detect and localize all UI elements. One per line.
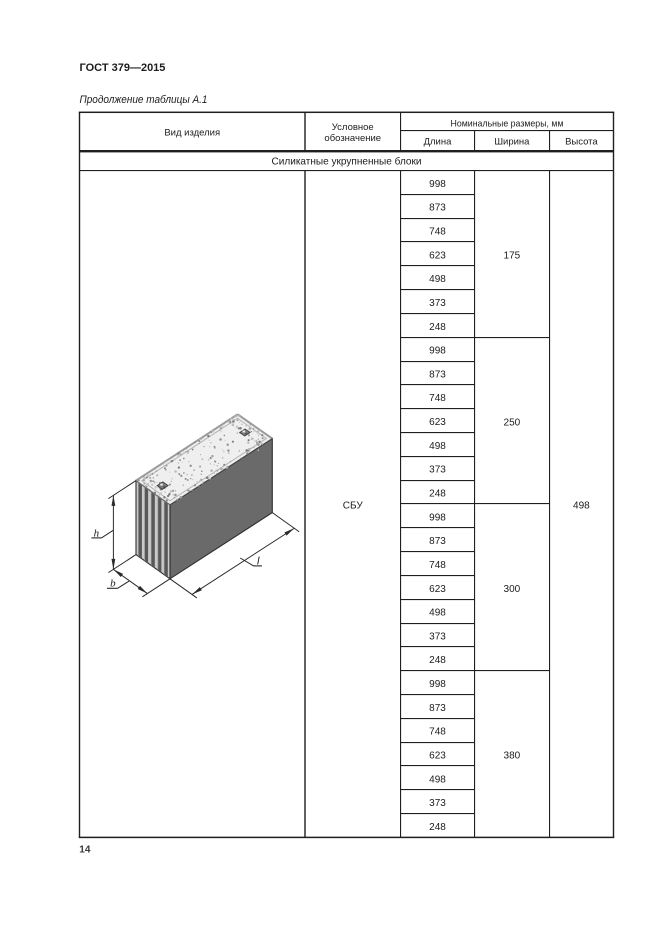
svg-text:623: 623 <box>429 250 446 261</box>
svg-text:498: 498 <box>429 774 446 785</box>
svg-text:СБУ: СБУ <box>343 501 364 512</box>
svg-text:873: 873 <box>429 703 446 714</box>
svg-text:обозначение: обозначение <box>324 133 381 144</box>
svg-text:998: 998 <box>429 512 446 523</box>
svg-text:373: 373 <box>429 465 446 476</box>
svg-text:380: 380 <box>504 751 521 762</box>
svg-text:300: 300 <box>504 584 521 595</box>
svg-text:373: 373 <box>429 798 446 809</box>
svg-text:Продолжение таблицы А.1: Продолжение таблицы А.1 <box>80 94 208 106</box>
svg-text:498: 498 <box>573 501 590 512</box>
svg-text:748: 748 <box>429 393 446 404</box>
svg-text:Силикатные укрупненные блоки: Силикатные укрупненные блоки <box>272 156 422 168</box>
svg-text:373: 373 <box>429 298 446 309</box>
svg-text:748: 748 <box>429 560 446 571</box>
svg-text:Высота: Высота <box>565 136 598 147</box>
svg-text:373: 373 <box>429 631 446 642</box>
svg-text:248: 248 <box>429 322 446 333</box>
svg-text:748: 748 <box>429 227 446 238</box>
svg-text:Номинальные размеры, мм: Номинальные размеры, мм <box>451 118 564 129</box>
svg-text:250: 250 <box>504 417 521 428</box>
svg-text:248: 248 <box>429 655 446 666</box>
svg-text:498: 498 <box>429 608 446 619</box>
svg-text:623: 623 <box>429 584 446 595</box>
svg-text:h: h <box>94 528 100 540</box>
svg-text:998: 998 <box>429 679 446 690</box>
svg-text:14: 14 <box>79 845 91 856</box>
svg-text:873: 873 <box>429 369 446 380</box>
svg-text:498: 498 <box>429 274 446 285</box>
svg-text:175: 175 <box>504 251 521 262</box>
svg-text:Условное: Условное <box>332 122 374 133</box>
svg-text:Ширина: Ширина <box>494 136 530 147</box>
svg-text:498: 498 <box>429 441 446 452</box>
svg-text:623: 623 <box>429 750 446 761</box>
svg-text:748: 748 <box>429 727 446 738</box>
svg-text:Длина: Длина <box>424 136 453 147</box>
svg-text:ГОСТ 379—2015: ГОСТ 379—2015 <box>80 62 166 74</box>
svg-text:b: b <box>110 577 116 589</box>
svg-text:Вид изделия: Вид изделия <box>164 128 220 139</box>
svg-text:623: 623 <box>429 417 446 428</box>
svg-text:998: 998 <box>429 179 446 190</box>
svg-text:998: 998 <box>429 346 446 357</box>
svg-text:873: 873 <box>429 536 446 547</box>
svg-text:248: 248 <box>429 488 446 499</box>
svg-text:873: 873 <box>429 203 446 214</box>
svg-text:248: 248 <box>429 822 446 833</box>
